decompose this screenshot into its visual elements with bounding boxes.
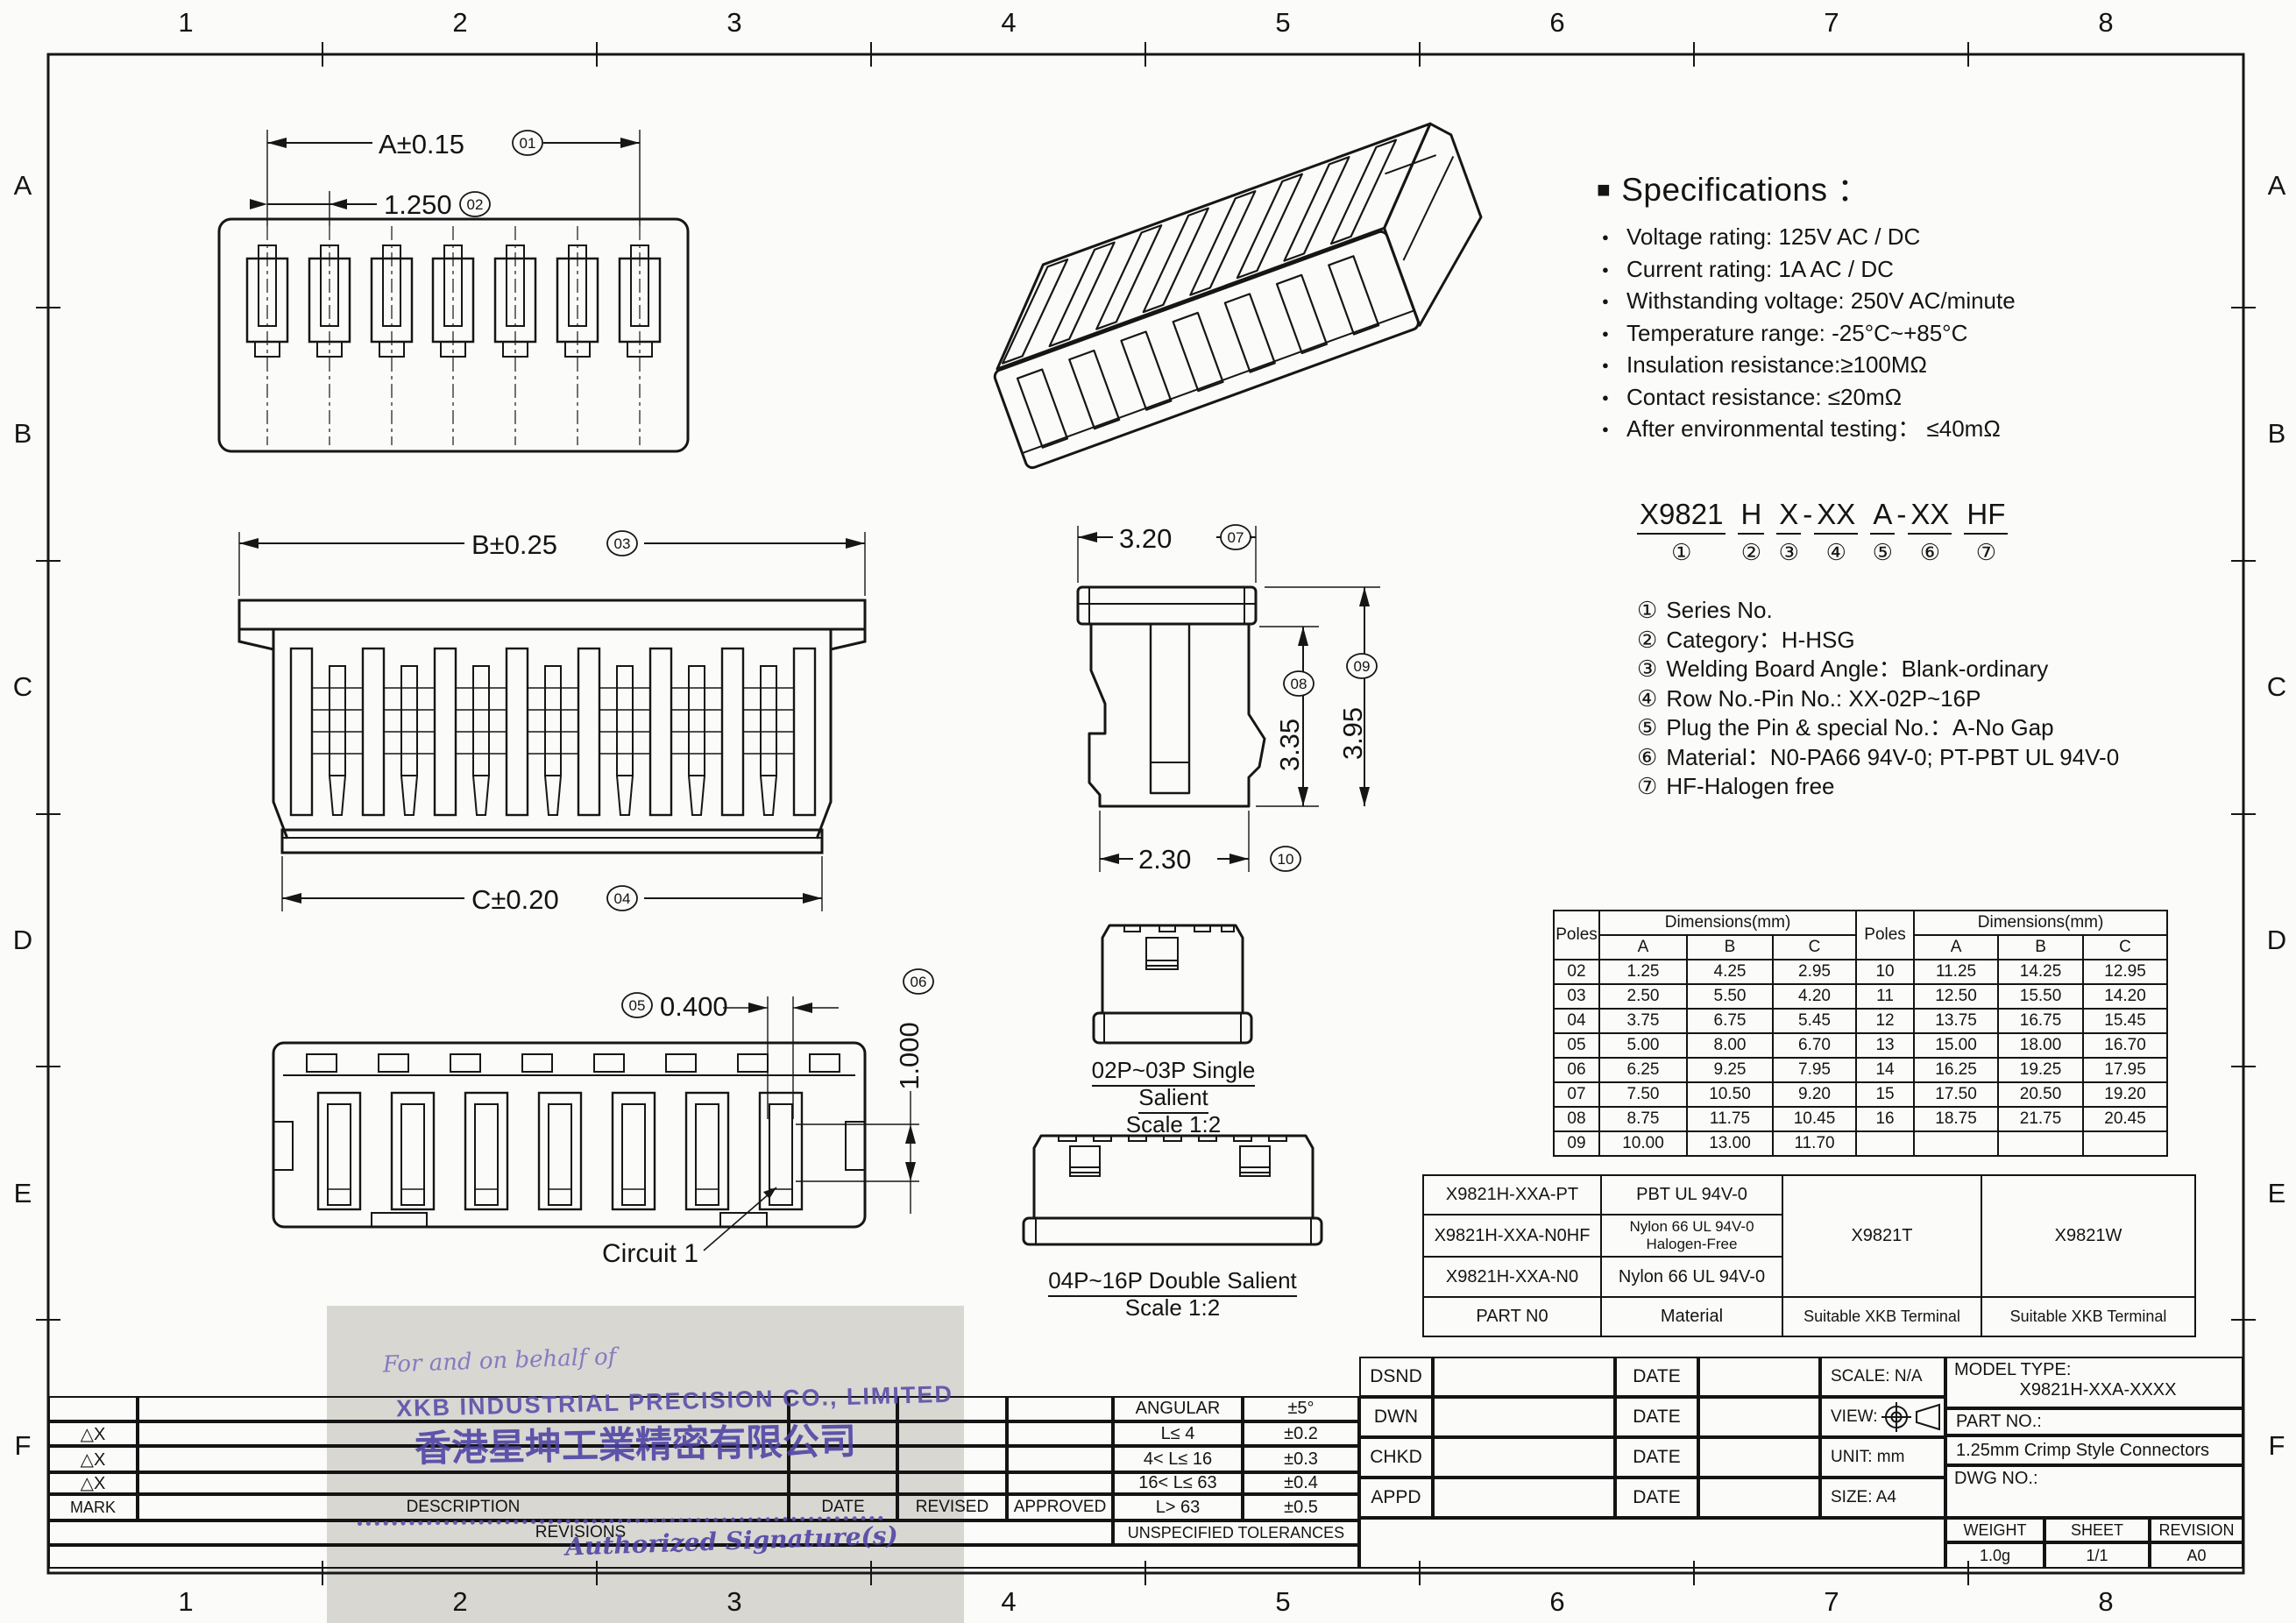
code-separator: - [1801, 498, 1814, 531]
grid-col-label: 4 [991, 7, 1026, 39]
double-salient-caption: 04P~16P Double Salient Scale 1:2 [1041, 1267, 1304, 1322]
grid-col-label: 3 [717, 7, 752, 39]
tolerance-label: L≤ 4 [1113, 1421, 1243, 1446]
svg-text:1.250: 1.250 [384, 189, 452, 220]
legend-item: ①Series No. [1637, 596, 2215, 626]
revision-header: REVISION [2150, 1518, 2243, 1542]
col-header: A [1599, 935, 1687, 960]
grid-row-label: F [2259, 1430, 2294, 1462]
dsnd-label: DSND [1359, 1357, 1433, 1397]
third-angle-projection-icon [1881, 1400, 1945, 1435]
svg-text:C±0.20: C±0.20 [471, 884, 559, 915]
side-view-drawing: 3.20 07 08 3.35 09 3.95 2.30 10 [1038, 504, 1433, 898]
scale-field: SCALE: N/A [1820, 1357, 1945, 1397]
svg-text:10: 10 [1278, 851, 1294, 868]
top-view-drawing: A±0.15 01 1.250 02 [202, 103, 701, 471]
legend-item: ⑤Plug the Pin & special No.：A-No Gap [1637, 713, 2215, 743]
col-header-poles: Poles [1554, 911, 1599, 960]
drawing-sheet: 1 2 3 4 5 6 7 8 1 2 3 4 5 6 7 8 A B C D … [0, 0, 2296, 1623]
legend-item: ⑦HF-Halogen free [1637, 772, 2215, 802]
col-header: A [1914, 935, 1998, 960]
svg-text:05: 05 [629, 997, 646, 1014]
grid-col-label: 2 [443, 1586, 478, 1618]
dimensions-table: Poles Dimensions(mm) Poles Dimensions(mm… [1553, 910, 2168, 1157]
spec-item: Temperature range: -25°C~+85°C [1597, 317, 2175, 350]
tolerance-value: ±5° [1243, 1396, 1359, 1421]
spec-item: Voltage rating: 125V AC / DC [1597, 221, 2175, 253]
double-salient-scale: Scale 1:2 [1125, 1294, 1220, 1321]
table-row: X9821H-XXA-PT PBT UL 94V-0 X9821T X9821W [1423, 1175, 2195, 1215]
table-row: 021.254.252.951011.2514.2512.95 [1554, 960, 2167, 984]
code-segment: X9821① [1637, 498, 1726, 566]
stamp-line-company-zh: 香港星坤工業精密有限公司 [386, 1411, 886, 1473]
specifications-section: ■Specifications ： Voltage rating: 125V A… [1597, 163, 2175, 445]
table-row: 066.259.257.951416.2519.2517.95 [1554, 1058, 2167, 1082]
col-header-dimensions: Dimensions(mm) [1599, 911, 1856, 935]
table-footer-row: PART N0 Material Suitable XKB Terminal S… [1423, 1297, 2195, 1336]
spec-item: Contact resistance: ≤20mΩ [1597, 381, 2175, 414]
tolerance-value: ±0.3 [1243, 1446, 1359, 1472]
svg-text:3.35: 3.35 [1274, 719, 1305, 771]
part-number-code: X9821①H②X③-XX④A⑤-XX⑥HF⑦ [1637, 498, 2215, 566]
col-header: B [1687, 935, 1773, 960]
approved-header: APPROVED [1007, 1494, 1113, 1520]
specifications-heading: ■Specifications ： [1597, 163, 2175, 210]
svg-text:0.400: 0.400 [660, 991, 728, 1022]
table-row: 043.756.755.451213.7516.7515.45 [1554, 1009, 2167, 1033]
svg-text:07: 07 [1228, 529, 1244, 546]
dwg-no-field: DWG NO.: [1945, 1465, 2243, 1518]
grid-row-label: F [5, 1430, 40, 1462]
weight-value: 1.0g [1945, 1542, 2044, 1569]
part-code-legend: ①Series No. ②Category：H-HSG ③Welding Boa… [1637, 596, 2215, 802]
single-salient-caption: 02P~03P Single Salient Scale 1:2 [1056, 1057, 1291, 1138]
date-label: DATE [1615, 1397, 1698, 1437]
col-header: C [2083, 935, 2167, 960]
code-segment: A⑤ [1870, 498, 1895, 566]
col-header: C [1773, 935, 1856, 960]
revised-header: REVISED [897, 1494, 1007, 1520]
table-row: 0910.0013.0011.70 [1554, 1131, 2167, 1156]
grid-row-label: B [5, 418, 40, 450]
code-segment: H② [1738, 498, 1764, 566]
revision-mark: △X [48, 1472, 138, 1494]
single-salient-drawing [1085, 918, 1260, 1059]
part-number-code-section: X9821①H②X③-XX④A⑤-XX⑥HF⑦ ①Series No. ②Cat… [1637, 498, 2215, 802]
col-header: B [1998, 935, 2083, 960]
sheet-header: SHEET [2044, 1518, 2150, 1542]
isometric-view-drawing [951, 83, 1494, 495]
grid-col-label: 5 [1265, 1586, 1300, 1618]
front-view-drawing: B±0.25 03 C±0.20 04 [210, 513, 920, 933]
appd-label: APPD [1359, 1478, 1433, 1518]
table-row: 077.5010.509.201517.5020.5019.20 [1554, 1082, 2167, 1107]
svg-text:3.20: 3.20 [1119, 523, 1172, 554]
square-bullet-icon: ■ [1597, 176, 1611, 202]
spec-item: Withstanding voltage: 250V AC/minute [1597, 285, 2175, 317]
grid-col-label: 1 [168, 7, 203, 39]
grid-row-label: A [5, 170, 40, 202]
dwn-label: DWN [1359, 1397, 1433, 1437]
legend-item: ②Category：H-HSG [1637, 626, 2215, 656]
svg-text:B±0.25: B±0.25 [471, 529, 557, 560]
unspecified-tolerances-header: UNSPECIFIED TOLERANCES [1113, 1520, 1359, 1545]
part-name-field: 1.25mm Crimp Style Connectors [1945, 1435, 2243, 1465]
svg-text:04: 04 [614, 890, 631, 907]
mark-header: MARK [48, 1494, 138, 1520]
terminal-t-cell: X9821T [1782, 1175, 1981, 1297]
svg-text:03: 03 [614, 535, 631, 552]
table-row: 088.7511.7510.451618.7521.7520.45 [1554, 1107, 2167, 1131]
grid-col-label: 7 [1814, 1586, 1849, 1618]
grid-row-label: C [5, 671, 40, 703]
code-segment: XX⑥ [1908, 498, 1952, 566]
tolerance-value: ±0.4 [1243, 1472, 1359, 1494]
revision-mark: △X [48, 1446, 138, 1472]
code-segment: X③ [1776, 498, 1801, 566]
svg-text:2.30: 2.30 [1138, 844, 1191, 875]
double-salient-drawing [1019, 1130, 1328, 1264]
tolerance-value: ±0.5 [1243, 1494, 1359, 1520]
svg-text:09: 09 [1354, 658, 1371, 675]
spec-item: Current rating: 1A AC / DC [1597, 253, 2175, 286]
code-segment: XX④ [1814, 498, 1858, 566]
grid-col-label: 2 [443, 7, 478, 39]
spec-item: After environmental testing： ≤40mΩ [1597, 413, 2175, 445]
view-field: VIEW: [1820, 1397, 1945, 1437]
svg-text:01: 01 [520, 135, 536, 152]
svg-text:08: 08 [1291, 676, 1307, 692]
bottom-view-drawing: 05 0.400 06 1.000 Circuit 1 [259, 942, 951, 1293]
svg-text:06: 06 [911, 974, 927, 990]
grid-row-label: E [5, 1178, 40, 1209]
size-field: SIZE: A4 [1820, 1478, 1945, 1518]
grid-col-label: 6 [1540, 7, 1575, 39]
grid-row-label: D [5, 925, 40, 956]
date-label: DATE [1615, 1478, 1698, 1518]
spec-item: Insulation resistance:≥100MΩ [1597, 349, 2175, 381]
description-header: DESCRIPTION [138, 1494, 789, 1520]
grid-col-label: 7 [1814, 7, 1849, 39]
table-row: 055.008.006.701315.0018.0016.70 [1554, 1033, 2167, 1058]
col-header-dimensions: Dimensions(mm) [1914, 911, 2167, 935]
table-row: 032.505.504.201112.5015.5014.20 [1554, 984, 2167, 1009]
grid-col-label: 6 [1540, 1586, 1575, 1618]
title-block: DSND DWN CHKD APPD DATE DATE DATE DATE S… [1359, 1357, 2243, 1569]
legend-item: ⑥Material：N0-PA66 94V-0; PT-PBT UL 94V-0 [1637, 743, 2215, 773]
weight-header: WEIGHT [1945, 1518, 2044, 1542]
svg-text:A±0.15: A±0.15 [379, 129, 464, 159]
grid-col-label: 1 [168, 1586, 203, 1618]
svg-text:1.000: 1.000 [894, 1022, 925, 1090]
model-type-field: MODEL TYPE: X9821H-XXA-XXXX [1945, 1357, 2243, 1408]
tolerance-label: 16< L≤ 63 [1113, 1472, 1243, 1494]
double-salient-title: 04P~16P Double Salient [1048, 1267, 1297, 1297]
svg-text:3.95: 3.95 [1337, 707, 1368, 760]
tolerance-label: L> 63 [1113, 1494, 1243, 1520]
terminal-w-cell: X9821W [1981, 1175, 2195, 1297]
grid-row-label: E [2259, 1178, 2294, 1209]
part-no-label: PART NO.: [1945, 1408, 2243, 1435]
tolerance-label: ANGULAR [1113, 1396, 1243, 1421]
tolerance-value: ±0.2 [1243, 1421, 1359, 1446]
grid-col-label: 3 [717, 1586, 752, 1618]
code-segment: HF⑦ [1964, 498, 2008, 566]
col-header-poles: Poles [1856, 911, 1914, 960]
svg-text:Circuit 1: Circuit 1 [602, 1239, 698, 1268]
sheet-value: 1/1 [2044, 1542, 2150, 1569]
grid-col-label: 4 [991, 1586, 1026, 1618]
grid-row-label: C [2259, 671, 2294, 703]
grid-col-label: 5 [1265, 7, 1300, 39]
material-table: X9821H-XXA-PT PBT UL 94V-0 X9821T X9821W… [1422, 1174, 2196, 1337]
chkd-label: CHKD [1359, 1437, 1433, 1478]
grid-row-label: D [2259, 925, 2294, 956]
code-separator: - [1895, 498, 1908, 531]
grid-row-label: A [2259, 170, 2294, 202]
revision-mark: △X [48, 1421, 138, 1446]
date-label: DATE [1615, 1357, 1698, 1397]
svg-text:02: 02 [467, 196, 484, 213]
legend-item: ④Row No.-Pin No.: XX-02P~16P [1637, 684, 2215, 714]
single-salient-title: 02P~03P Single Salient [1092, 1057, 1256, 1114]
grid-col-label: 8 [2088, 1586, 2123, 1618]
date-label: DATE [1615, 1437, 1698, 1478]
unit-field: UNIT: mm [1820, 1437, 1945, 1478]
grid-row-label: B [2259, 418, 2294, 450]
specifications-list: Voltage rating: 125V AC / DC Current rat… [1597, 221, 2175, 445]
revision-value: A0 [2150, 1542, 2243, 1569]
tolerance-label: 4< L≤ 16 [1113, 1446, 1243, 1472]
grid-col-label: 8 [2088, 7, 2123, 39]
legend-item: ③Welding Board Angle：Blank-ordinary [1637, 655, 2215, 684]
